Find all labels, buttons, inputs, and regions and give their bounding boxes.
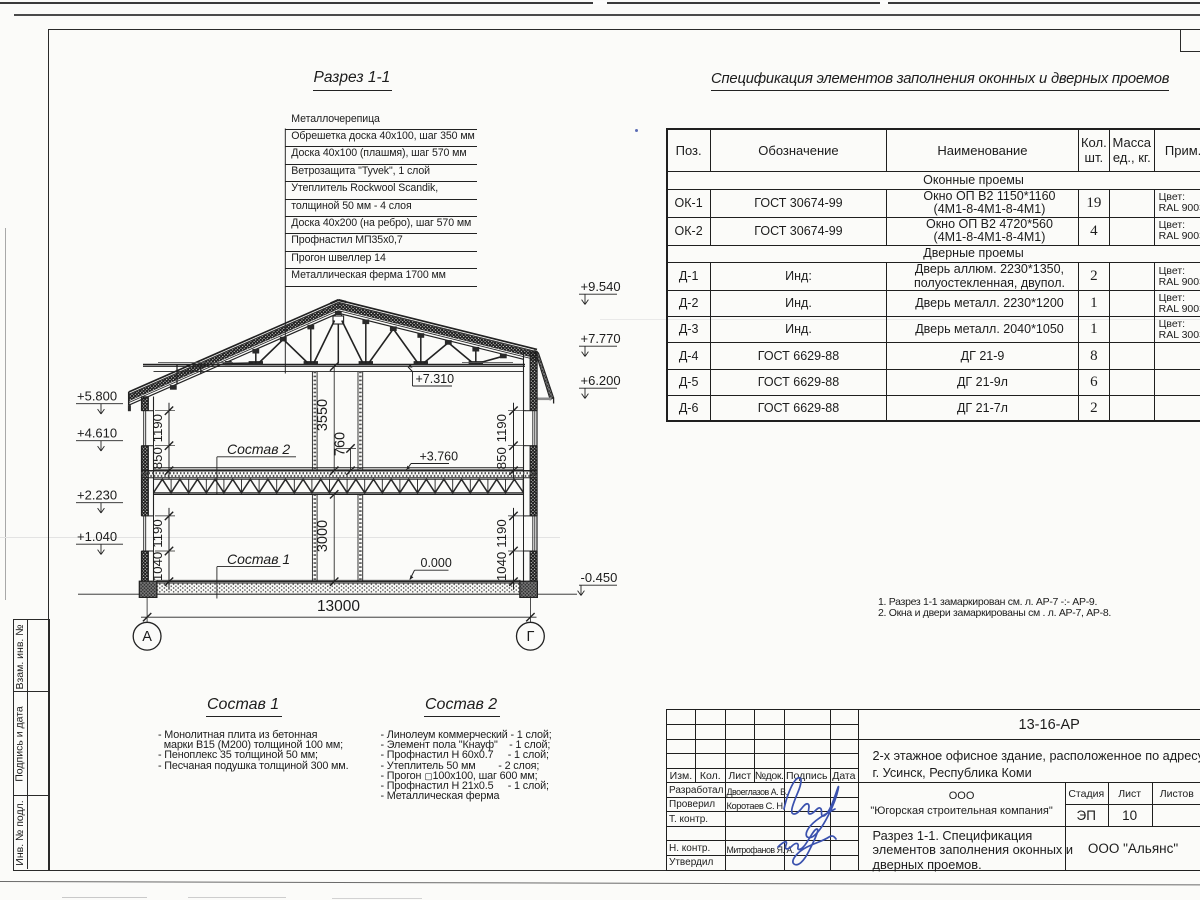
svg-text:1040: 1040 — [150, 552, 165, 581]
svg-text:+7.310: +7.310 — [416, 372, 455, 386]
svg-text:3000: 3000 — [315, 520, 331, 552]
svg-text:+7.770: +7.770 — [581, 331, 621, 346]
svg-text:+2.230: +2.230 — [77, 488, 117, 503]
svg-text:+5.800: +5.800 — [77, 389, 117, 404]
svg-text:850: 850 — [150, 447, 165, 469]
svg-text:1040: 1040 — [494, 552, 509, 581]
svg-text:1190: 1190 — [150, 414, 165, 442]
svg-text:13000: 13000 — [317, 598, 360, 615]
svg-text:760: 760 — [333, 432, 349, 456]
svg-text:Г: Г — [526, 629, 534, 645]
svg-text:+4.610: +4.610 — [77, 426, 117, 441]
svg-text:-0.450: -0.450 — [581, 570, 618, 585]
svg-text:1190: 1190 — [494, 414, 509, 442]
svg-text:0.000: 0.000 — [421, 556, 452, 570]
svg-text:1190: 1190 — [494, 519, 509, 547]
svg-text:+6.200: +6.200 — [581, 373, 621, 388]
svg-text:+3.760: +3.760 — [420, 449, 459, 463]
svg-text:Состав 1: Состав 1 — [227, 551, 290, 567]
svg-text:850: 850 — [494, 447, 509, 469]
svg-text:1190: 1190 — [150, 519, 165, 547]
svg-text:Состав 2: Состав 2 — [227, 441, 290, 457]
svg-text:3550: 3550 — [315, 399, 331, 431]
svg-text:+9.540: +9.540 — [581, 279, 621, 294]
svg-text:+1.040: +1.040 — [77, 529, 117, 544]
svg-text:А: А — [142, 629, 152, 645]
